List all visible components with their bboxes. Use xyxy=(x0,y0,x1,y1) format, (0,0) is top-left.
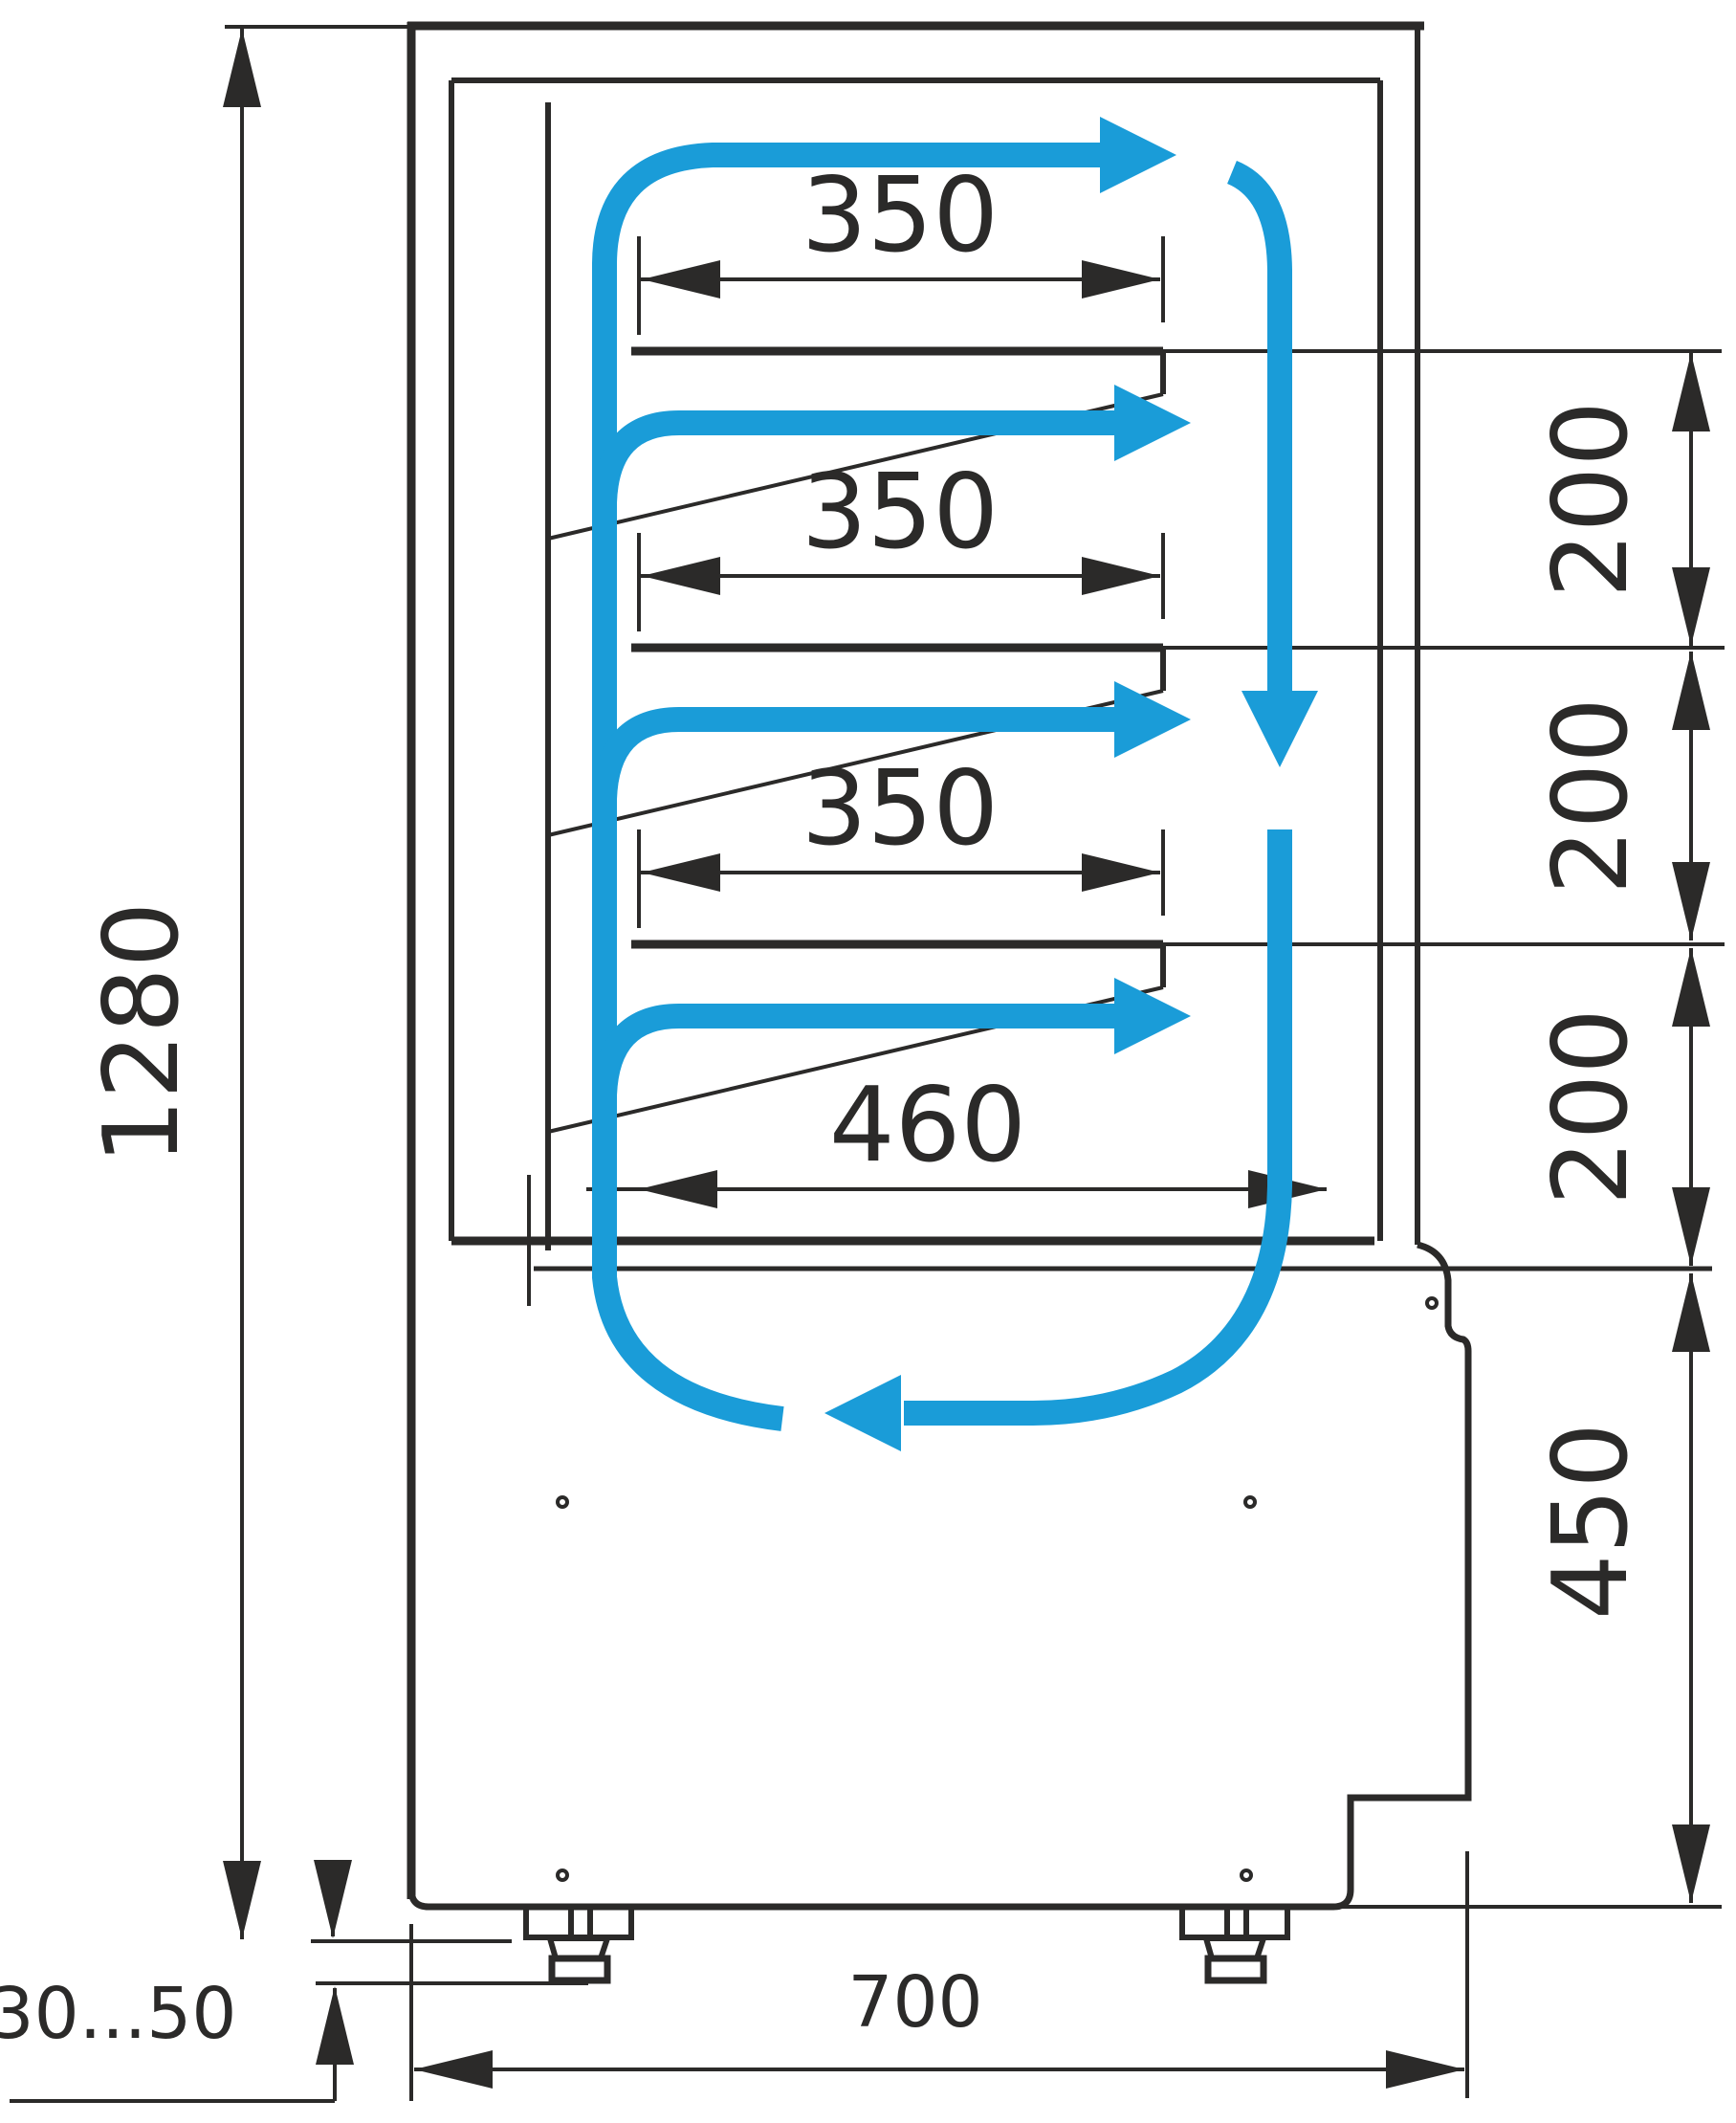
arrowhead-left-icon xyxy=(642,853,720,892)
drawing-canvas: 1280 350 350 350 460 200 200 xyxy=(0,0,1736,2123)
airflow-arrow-down-icon xyxy=(1242,691,1318,767)
dimension-shelf-gap-3: 200 xyxy=(1531,948,1710,1266)
screw-hole xyxy=(1427,1298,1437,1308)
screw-hole xyxy=(558,1870,567,1880)
arrowhead-right-icon xyxy=(1082,557,1160,595)
overall-depth-label: 700 xyxy=(847,1961,982,2044)
screw-hole xyxy=(1245,1497,1255,1507)
dimension-shelf-gap-1: 200 xyxy=(1531,353,1710,646)
feet-range-label: 30...50 xyxy=(0,1973,236,2055)
dimension-bottom-shelf-width: 460 xyxy=(586,1066,1327,1208)
arrowhead-left-icon xyxy=(642,557,720,595)
screw-hole xyxy=(1242,1870,1251,1880)
arrowhead-up-icon xyxy=(1672,948,1710,1027)
arrowhead-down-icon xyxy=(1672,567,1710,646)
arrowhead-up-icon xyxy=(1672,353,1710,431)
dimension-shelf-width-1: 350 xyxy=(639,156,1160,299)
arrowhead-down-icon xyxy=(1672,1824,1710,1903)
bottom-shelf-width-label: 460 xyxy=(829,1066,1026,1185)
bottom-deck xyxy=(451,1175,1712,1306)
dimension-overall-height: 1280 xyxy=(82,29,261,1939)
arrowhead-right-icon xyxy=(1386,2050,1464,2089)
overall-height-label: 1280 xyxy=(82,902,202,1165)
base-cabinet xyxy=(411,1245,1468,1907)
airflow-arrow-left-icon xyxy=(824,1375,901,1451)
arrowhead-up-icon xyxy=(1672,1273,1710,1352)
shelf-gap-label: 200 xyxy=(1531,1008,1651,1205)
shelf-width-label: 350 xyxy=(802,156,999,276)
front-glass xyxy=(1380,26,1417,1245)
arrowhead-left-icon xyxy=(414,2050,493,2089)
arrowhead-right-icon xyxy=(1082,853,1160,892)
arrowhead-up-icon xyxy=(1672,652,1710,730)
adjustable-foot-right xyxy=(1182,1907,1287,1980)
arrowhead-up-icon xyxy=(223,29,261,107)
shelf-gap-label: 200 xyxy=(1531,697,1651,895)
arrowhead-down-icon xyxy=(223,1861,261,1939)
airflow-arrow-right-icon xyxy=(1100,117,1176,193)
arrowhead-down-icon xyxy=(1672,1187,1710,1266)
dimension-shelf-gap-2: 200 xyxy=(1531,652,1710,940)
arrowhead-up-icon xyxy=(316,1986,354,2065)
display-case-section-drawing: 1280 350 350 350 460 200 200 xyxy=(0,0,1736,2123)
arrowhead-down-icon xyxy=(1672,862,1710,940)
arrowhead-right-icon xyxy=(1082,260,1160,299)
top-cap xyxy=(407,26,1424,80)
screw-hole xyxy=(558,1497,567,1507)
arrowhead-down-icon xyxy=(314,1860,352,1938)
dimension-base-height: 450 xyxy=(1531,1273,1710,1903)
airflow-loop-front-upper xyxy=(1232,172,1280,691)
base-height-label: 450 xyxy=(1531,1423,1651,1620)
shelf-width-label: 350 xyxy=(802,749,999,869)
arrowhead-left-icon xyxy=(642,260,720,299)
dimension-shelf-width-2: 350 xyxy=(639,453,1160,595)
shelf-width-label: 350 xyxy=(802,453,999,572)
adjustable-foot-left xyxy=(526,1907,631,1980)
arrowhead-left-icon xyxy=(639,1170,717,1208)
dimension-shelf-width-3: 350 xyxy=(639,749,1160,892)
shelf-gap-label: 200 xyxy=(1531,401,1651,598)
dimension-feet-range: 30...50 xyxy=(0,1860,354,2101)
